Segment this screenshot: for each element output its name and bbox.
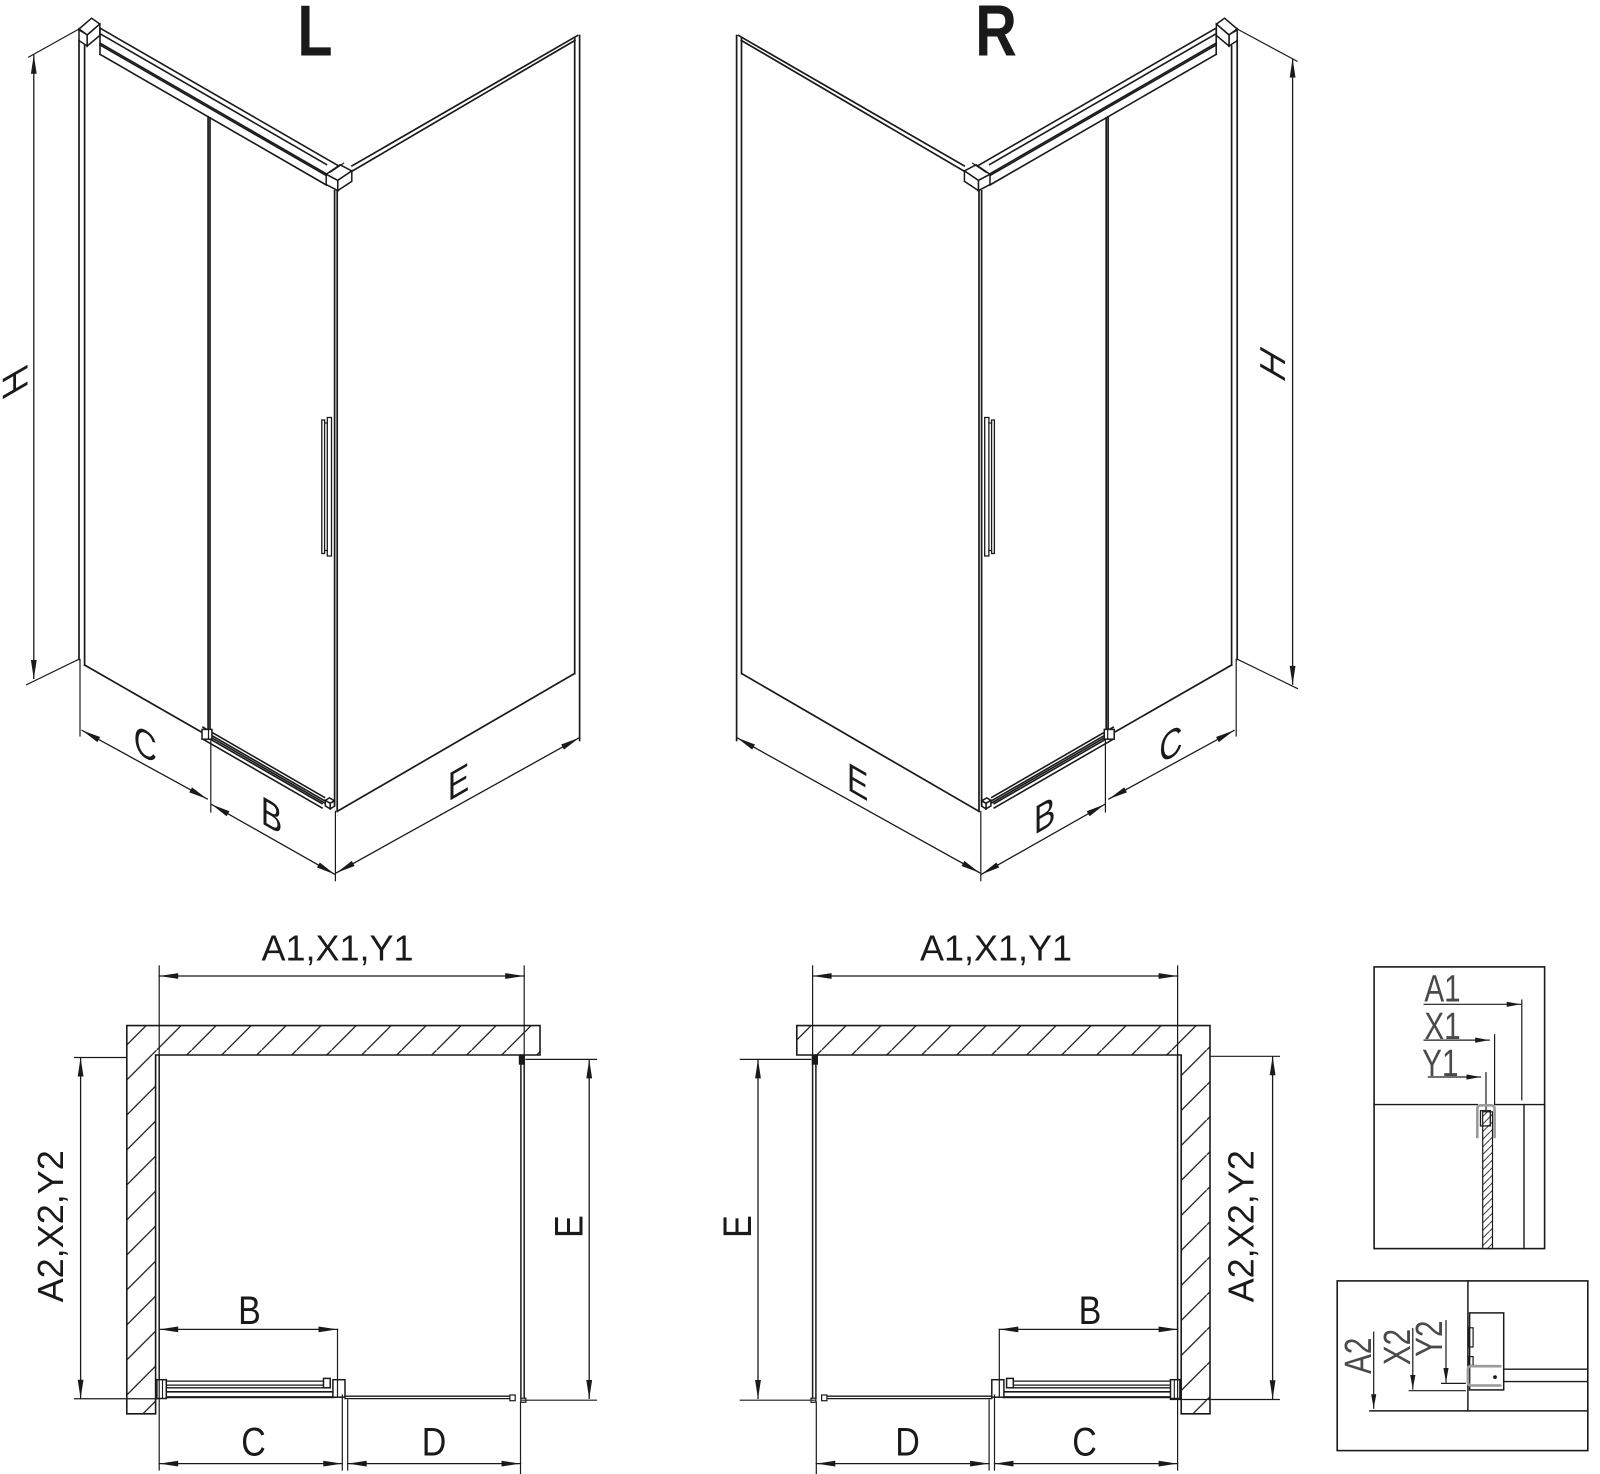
svg-text:A2: A2	[1337, 1338, 1379, 1374]
svg-text:C: C	[1072, 1419, 1097, 1464]
svg-text:E: E	[714, 1215, 759, 1238]
svg-text:A2,X2,Y2: A2,X2,Y2	[30, 1150, 71, 1302]
svg-text:R: R	[975, 0, 1017, 71]
svg-text:A2,X2,Y2: A2,X2,Y2	[1221, 1150, 1262, 1302]
svg-text:A1,X1,Y1: A1,X1,Y1	[261, 928, 413, 969]
svg-text:Y2: Y2	[1409, 1321, 1451, 1357]
svg-text:B: B	[1079, 1287, 1102, 1332]
svg-text:B: B	[238, 1287, 261, 1332]
svg-text:A1,X1,Y1: A1,X1,Y1	[920, 928, 1072, 969]
svg-text:Y1: Y1	[1422, 1042, 1458, 1084]
svg-text:E: E	[546, 1215, 591, 1238]
svg-text:A1: A1	[1424, 968, 1460, 1010]
svg-text:L: L	[297, 0, 332, 71]
svg-text:C: C	[241, 1419, 266, 1464]
svg-text:D: D	[895, 1419, 920, 1464]
svg-text:D: D	[422, 1419, 447, 1464]
